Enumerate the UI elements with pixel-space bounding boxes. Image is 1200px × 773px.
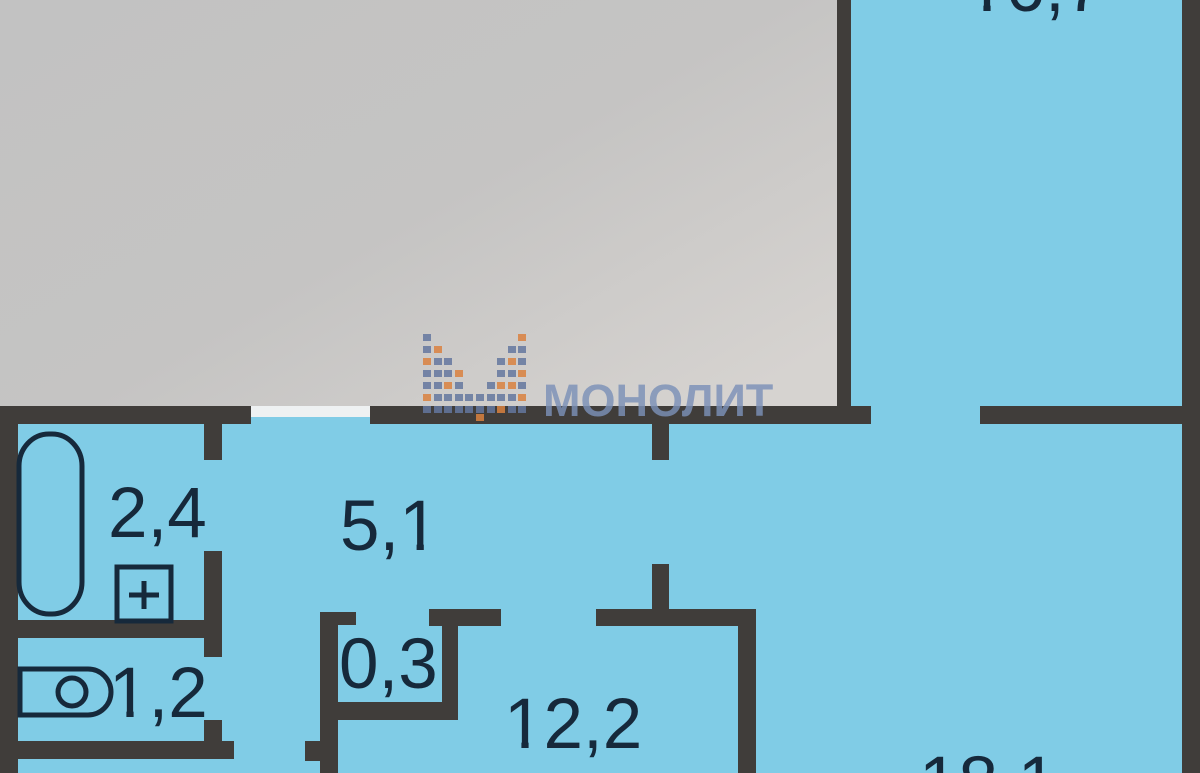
svg-text:12,2: 12,2: [504, 685, 642, 764]
svg-text:18,1: 18,1: [919, 743, 1057, 773]
svg-text:5,1: 5,1: [340, 487, 439, 566]
svg-text:0,3: 0,3: [339, 625, 438, 704]
svg-text:2,4: 2,4: [108, 474, 207, 553]
svg-text:16,7: 16,7: [966, 0, 1104, 27]
svg-text:МОНОЛИТ: МОНОЛИТ: [543, 375, 773, 426]
svg-text:1,2: 1,2: [109, 654, 208, 733]
